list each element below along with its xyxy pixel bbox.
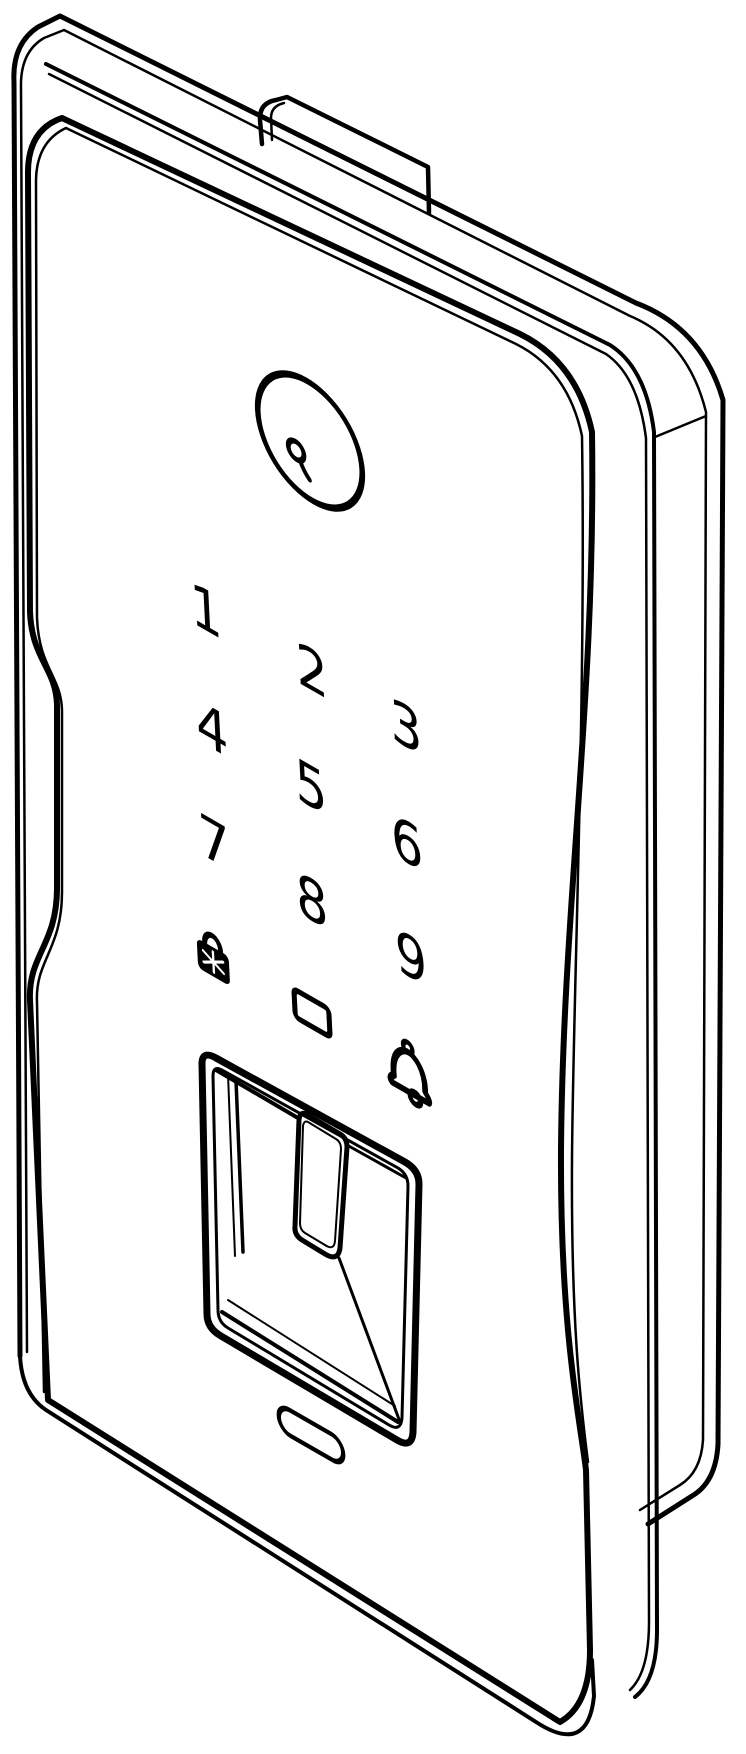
bottom-edge-line [20,1356,594,1734]
key-bell[interactable] [388,1031,430,1112]
corner-chamfer-line [655,416,706,437]
device-body [14,16,723,1734]
indicator-window-pill [278,1404,344,1467]
key-blank[interactable] [294,989,330,1037]
fingerprint-scanner[interactable] [202,1055,419,1443]
keypad: 1 2 3 4 5 6 7 8 9 [188,568,430,1113]
user-call-button[interactable] [255,351,365,531]
user-button-ring[interactable] [255,351,365,531]
key-3[interactable]: 3 [388,684,423,770]
back-plate-inner-line [21,30,706,1510]
key-2[interactable]: 2 [294,628,329,714]
fingerprint-sensor-window-inner [300,1122,341,1248]
box-crease-outer [46,64,657,1697]
key-6[interactable]: 6 [389,800,424,886]
indicator-window [278,1404,344,1467]
key-8[interactable]: 8 [294,858,329,944]
key-1[interactable]: 1 [188,568,223,654]
key-lock[interactable] [197,927,229,985]
padlock-icon [197,927,229,985]
figure-canvas: 1 2 3 4 5 6 7 8 9 [0,0,746,1754]
recess-wall-fold-bottomright [339,1258,400,1422]
recess-left-wall-crease [236,1080,243,1252]
box-crease-inner [49,74,649,1690]
door-lock-drawing: 1 2 3 4 5 6 7 8 9 [0,0,746,1754]
key-4[interactable]: 4 [194,686,229,772]
back-plate-outline [14,16,723,1524]
key-9[interactable]: 9 [393,915,428,1001]
recess-left-wall-crease-2 [228,1074,235,1256]
key-7[interactable]: 7 [196,799,231,885]
blank-square-key [294,989,330,1037]
person-icon [288,437,310,480]
key-5[interactable]: 5 [293,744,328,830]
doorbell-icon [388,1031,430,1112]
recess-floor-fold [222,1312,398,1422]
